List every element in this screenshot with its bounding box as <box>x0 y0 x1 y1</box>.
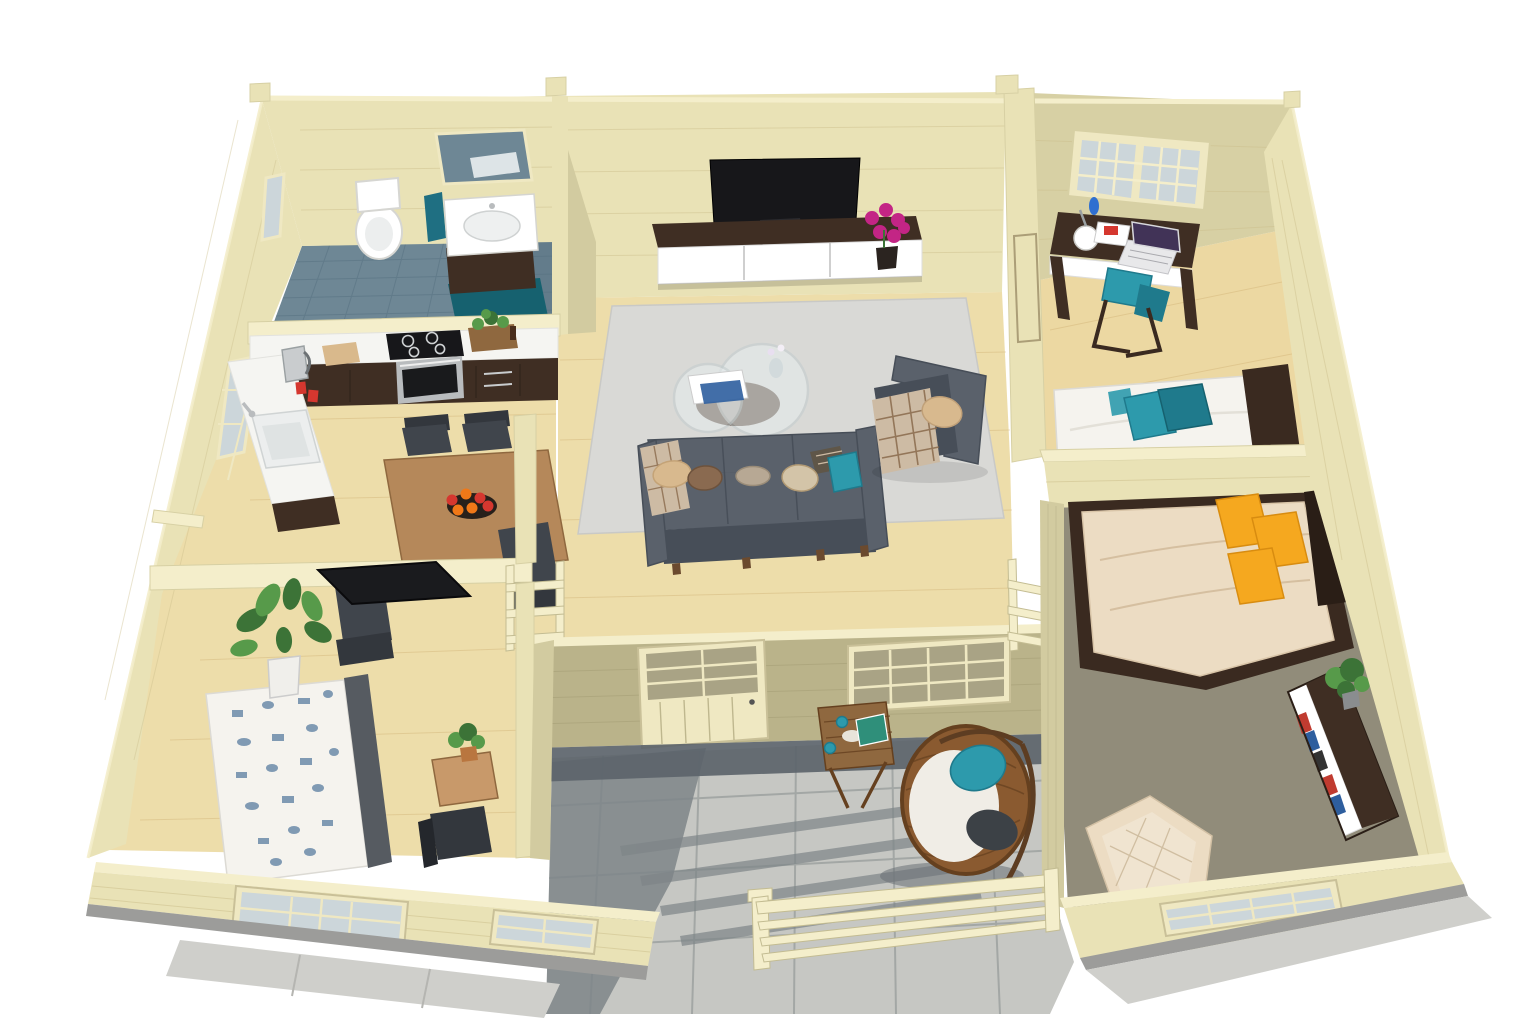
herb <box>472 318 484 330</box>
terrace-east-wall <box>1040 500 1064 908</box>
floorplan-render <box>0 0 1536 1025</box>
dining-chair <box>402 414 452 456</box>
pattern-motif <box>245 802 259 810</box>
pattern-motif <box>262 701 274 709</box>
corner-post <box>1284 91 1300 108</box>
toilet <box>356 178 402 259</box>
vanity <box>444 194 538 294</box>
herb <box>497 316 509 328</box>
vase-flower <box>778 345 785 352</box>
induction-hob <box>386 330 464 360</box>
magazine-cover <box>1104 226 1118 235</box>
pattern-motif <box>272 734 284 741</box>
pattern-motif <box>236 772 247 778</box>
flower <box>898 222 910 234</box>
wall-shaded-face <box>530 640 554 860</box>
pillow-teal <box>1158 384 1212 431</box>
blue-bottle <box>1089 197 1099 215</box>
apple <box>483 501 494 512</box>
sofa-foot <box>816 549 825 561</box>
flower <box>865 211 879 225</box>
mullion <box>890 650 891 704</box>
apple <box>447 495 458 506</box>
pillow-teal <box>828 452 862 492</box>
toilet-seat <box>365 217 393 251</box>
sofa-foot <box>672 563 681 575</box>
mullion <box>966 645 967 699</box>
window-sash <box>1139 146 1200 204</box>
pattern-motif <box>270 858 282 866</box>
dining-chair <box>462 410 512 452</box>
teal-mug <box>837 717 848 728</box>
scene-canvas <box>0 0 1536 1025</box>
wall-tv <box>710 158 860 224</box>
toile-bed <box>206 674 392 884</box>
railing-post <box>1044 868 1060 932</box>
chair-seat <box>430 806 492 860</box>
pattern-motif <box>300 758 312 765</box>
pattern-motif <box>306 724 318 732</box>
door-handle <box>749 699 755 705</box>
small-pot <box>460 746 478 762</box>
apple <box>461 489 472 500</box>
bed-duvet <box>206 680 368 884</box>
faucet <box>489 203 495 209</box>
pot <box>876 246 898 270</box>
apple <box>453 505 464 516</box>
divider-wall <box>514 414 536 564</box>
plant-pot <box>268 656 300 698</box>
pattern-motif <box>298 698 310 704</box>
pattern-motif <box>329 748 339 756</box>
plant-leaves <box>1354 676 1370 692</box>
bathroom-side-window <box>262 174 284 240</box>
pattern-motif <box>312 784 324 792</box>
pattern-motif <box>232 710 243 717</box>
pattern-motif <box>323 690 333 698</box>
sofa-foot <box>860 545 869 557</box>
sofa-foot <box>742 557 751 569</box>
pattern-motif <box>266 764 278 772</box>
pattern-motif <box>237 738 251 746</box>
flower <box>879 203 893 217</box>
vase-flower <box>768 349 775 356</box>
basin-bowl <box>464 211 520 241</box>
terrace-door <box>638 640 768 748</box>
pattern-motif <box>322 820 333 826</box>
divider-post <box>996 75 1018 94</box>
book <box>856 714 888 746</box>
bottle <box>510 326 516 340</box>
terrace-window <box>848 636 1010 712</box>
herb <box>481 309 491 319</box>
teal-mug <box>825 743 836 754</box>
divider-post <box>546 77 566 96</box>
toilet-tank <box>356 178 400 212</box>
window-sash <box>1077 140 1136 198</box>
pattern-motif <box>258 838 269 844</box>
chair-seat <box>462 420 512 452</box>
chair-seat <box>402 424 452 456</box>
corner-post <box>250 83 270 102</box>
office-window <box>1068 130 1210 210</box>
red-mug <box>295 382 306 395</box>
pattern-motif <box>288 826 300 834</box>
sofa <box>638 426 888 575</box>
red-mug <box>307 390 318 403</box>
wall-face <box>1040 500 1064 908</box>
pattern-motif <box>304 848 316 856</box>
vase <box>769 358 783 378</box>
magazine <box>700 380 744 404</box>
pattern-motif <box>282 796 294 803</box>
cutting-board <box>322 342 360 366</box>
kettle <box>282 346 310 382</box>
kettle-body <box>282 346 308 382</box>
oven-window <box>402 364 458 398</box>
mullion <box>928 648 929 702</box>
bathroom-right-wall <box>552 96 568 336</box>
pillow <box>736 467 770 486</box>
apple <box>467 503 478 514</box>
apple <box>475 493 486 504</box>
